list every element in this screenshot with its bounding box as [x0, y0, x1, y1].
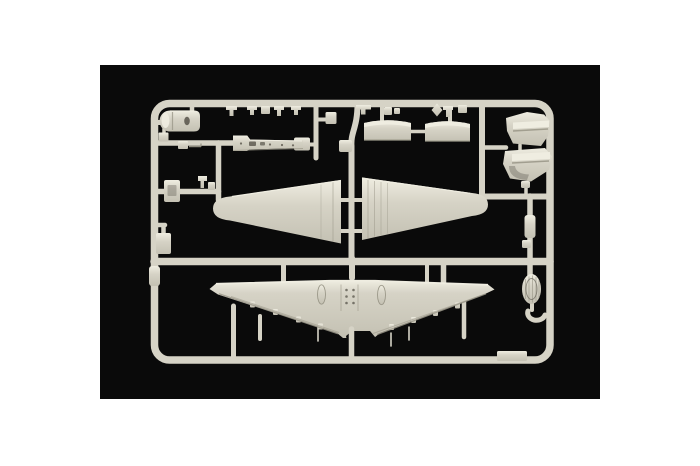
- nose-face-highlight: [162, 113, 170, 128]
- wing-rivet: [345, 289, 348, 292]
- small-part-under-nose: [159, 133, 169, 142]
- small-part-loop-b: [208, 182, 215, 190]
- wing-rivet: [345, 302, 348, 305]
- small-part-block-2: [384, 107, 392, 115]
- keel-rivet-4: [292, 144, 294, 146]
- wing-fairing-left: [318, 285, 326, 304]
- small-part-leftrail-stub: [149, 266, 160, 286]
- small-part-rail-block: [178, 141, 188, 149]
- small-part-block-4: [458, 105, 467, 113]
- keel-rivet-3: [281, 144, 283, 146]
- loop-block-inner: [168, 185, 177, 196]
- keel-rivet-2: [269, 143, 271, 145]
- product-photo: [0, 0, 700, 466]
- sprue-photo-svg: [0, 0, 700, 466]
- nose-slot: [184, 117, 190, 125]
- keel-slot-2: [260, 142, 265, 146]
- small-part-bend-block: [339, 140, 352, 152]
- wing-rivet: [352, 302, 355, 305]
- wing-rivet: [352, 295, 355, 298]
- wing-rivet: [345, 295, 348, 298]
- small-part-block-3: [394, 108, 400, 114]
- keel-rivet-1: [240, 142, 242, 144]
- wing-rivet: [352, 289, 355, 292]
- small-part-v4-block: [525, 215, 536, 238]
- small-part-lowerleft-block: [156, 233, 171, 254]
- small-part-bottom-plate: [497, 351, 527, 361]
- small-part-v4-head: [521, 181, 530, 188]
- small-part-v4-tab: [522, 240, 531, 248]
- small-part-v2-block: [326, 112, 337, 124]
- small-part-block-1: [261, 106, 270, 114]
- keel-slot-1: [249, 142, 256, 147]
- wing-fairing-right: [378, 285, 386, 304]
